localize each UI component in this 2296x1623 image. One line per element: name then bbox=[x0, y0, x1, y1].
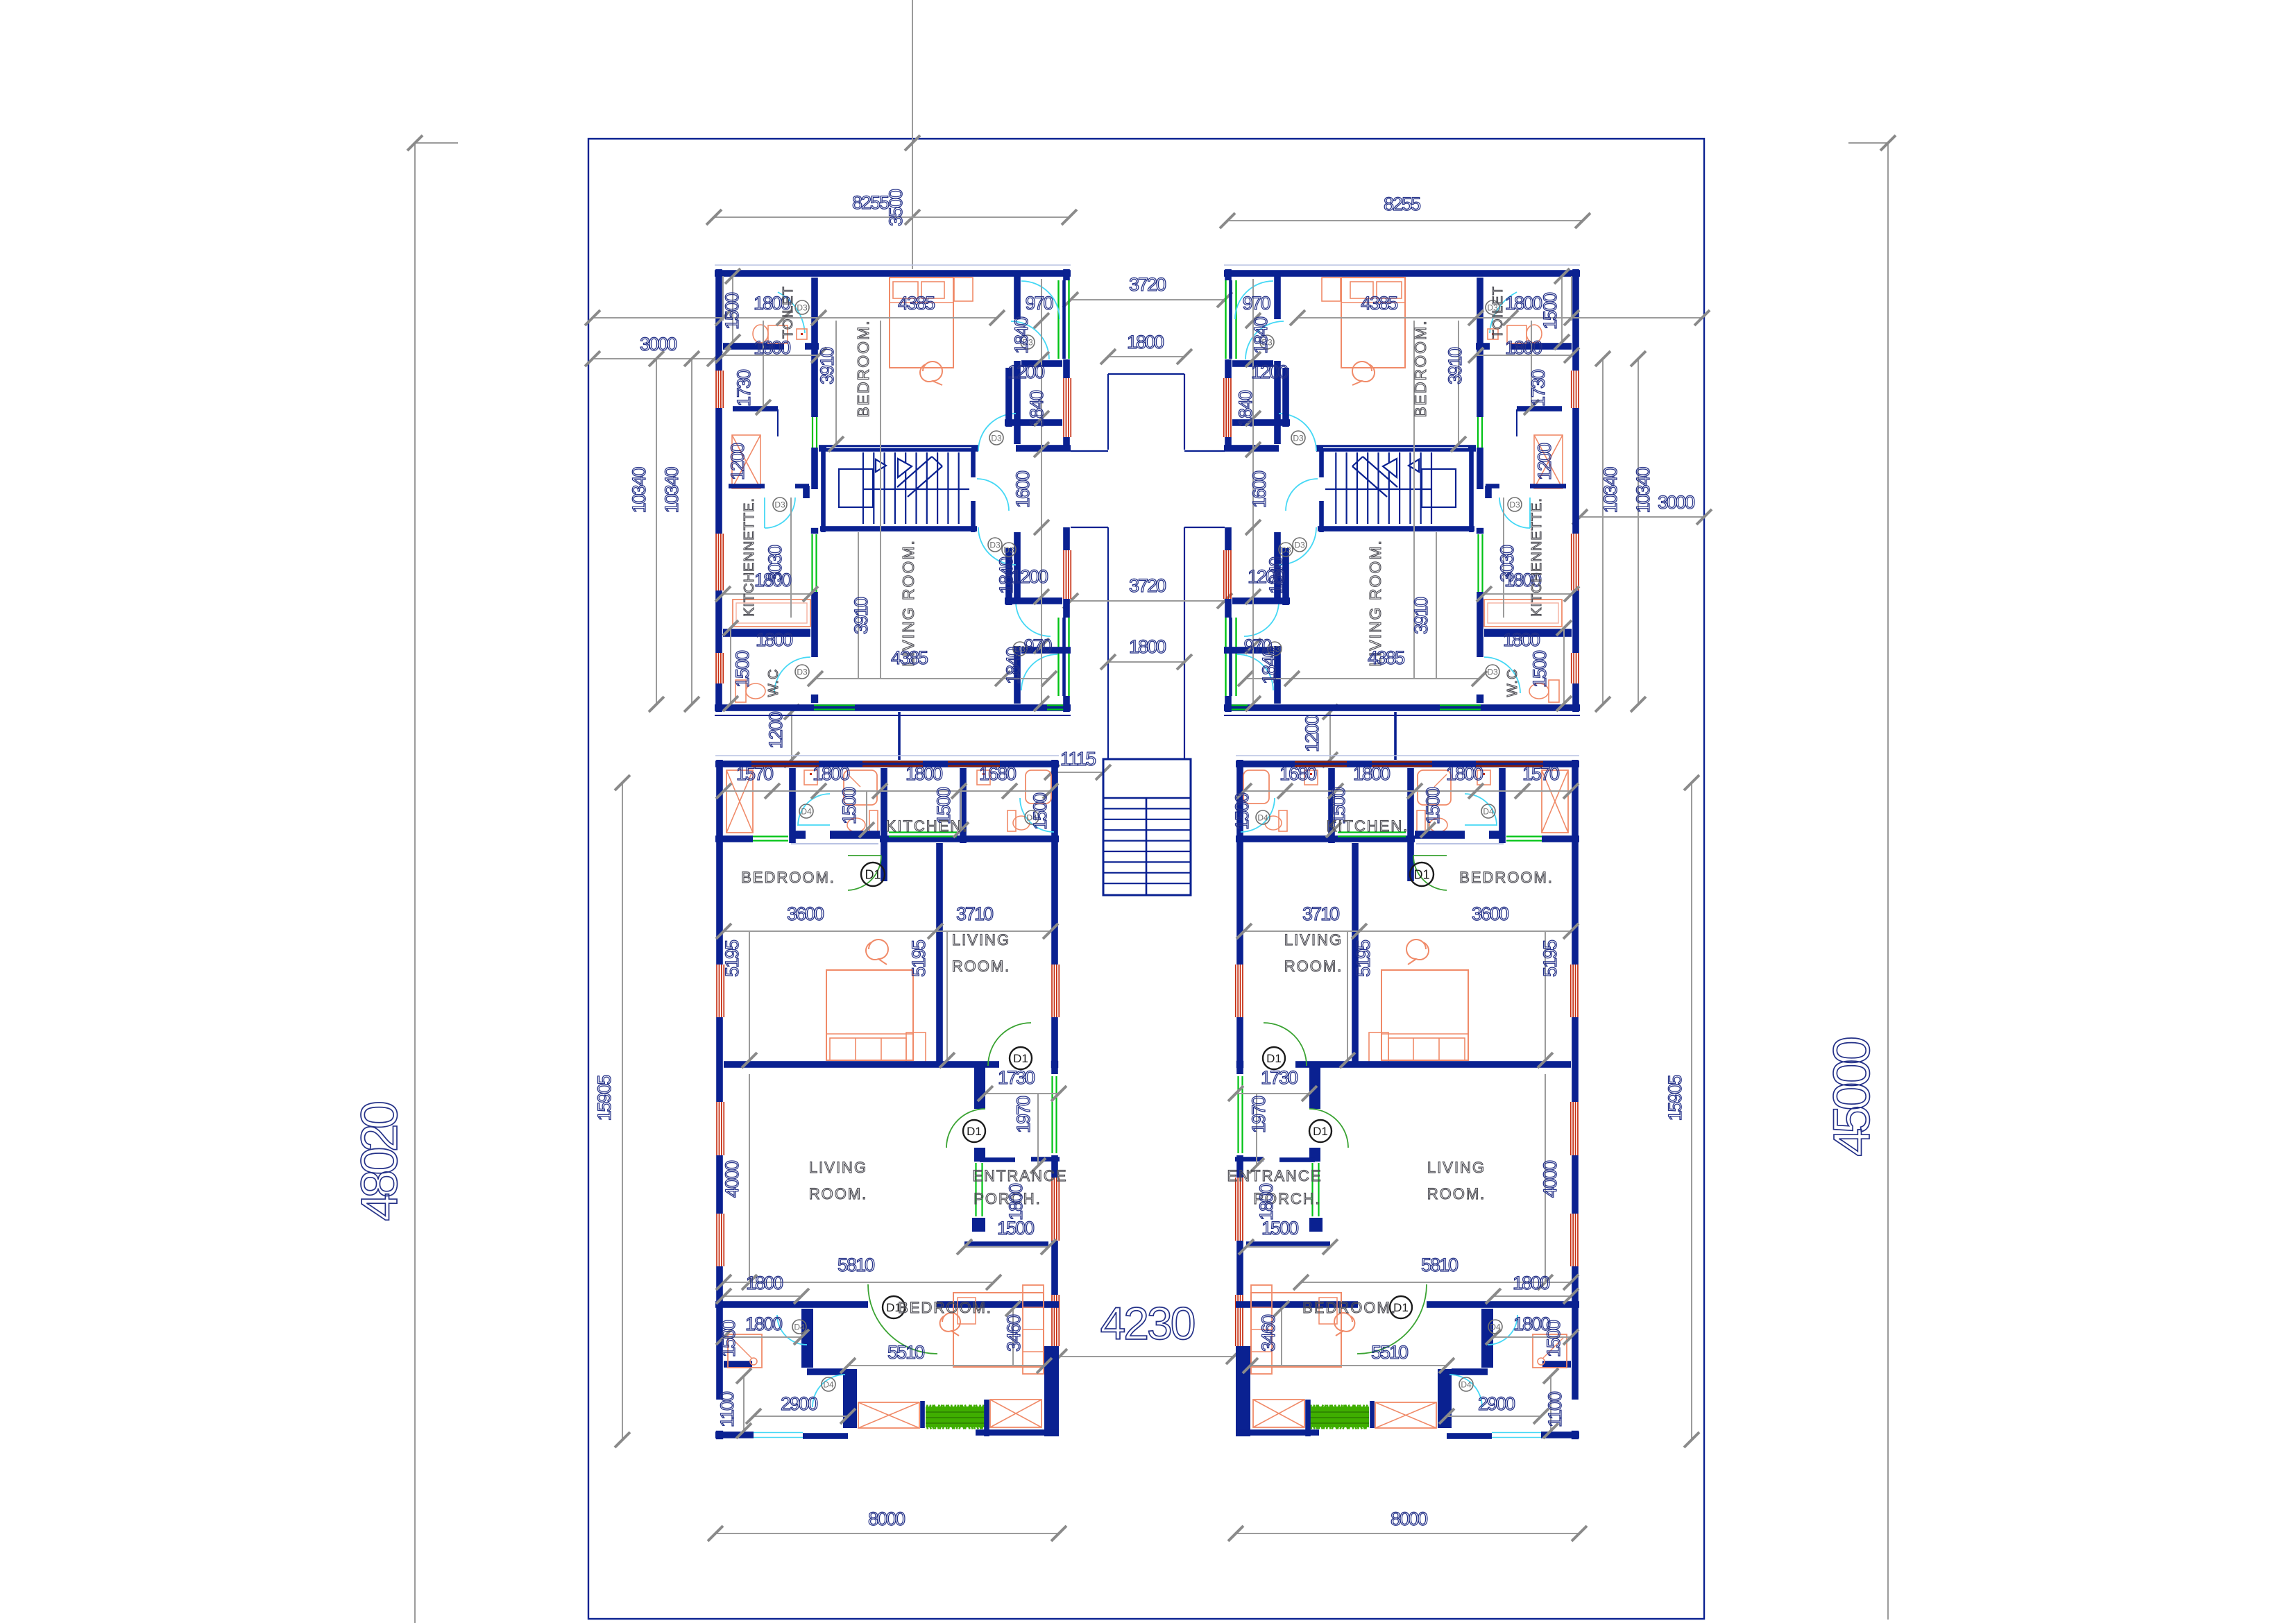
svg-text:BEDROOM.: BEDROOM. bbox=[741, 869, 835, 886]
svg-text:1600: 1600 bbox=[1249, 471, 1270, 508]
svg-text:1680: 1680 bbox=[979, 763, 1016, 784]
svg-text:TOILET: TOILET bbox=[781, 286, 796, 339]
svg-text:1200: 1200 bbox=[1251, 362, 1288, 382]
svg-text:D3: D3 bbox=[1003, 545, 1014, 554]
svg-text:3720: 3720 bbox=[1129, 575, 1166, 596]
svg-text:1500: 1500 bbox=[1261, 1218, 1298, 1239]
svg-text:1800: 1800 bbox=[1005, 1184, 1026, 1221]
svg-text:2900: 2900 bbox=[781, 1393, 817, 1414]
svg-text:LIVING: LIVING bbox=[1284, 931, 1343, 949]
svg-text:1800: 1800 bbox=[1446, 763, 1483, 784]
svg-text:BEDROOM.: BEDROOM. bbox=[1302, 1299, 1397, 1316]
svg-text:4385: 4385 bbox=[891, 647, 928, 668]
svg-text:1800: 1800 bbox=[813, 763, 849, 784]
svg-text:8255: 8255 bbox=[852, 192, 889, 213]
svg-text:1840: 1840 bbox=[1235, 391, 1256, 427]
svg-text:3600: 3600 bbox=[787, 903, 824, 924]
svg-text:KITCHENNETTE.: KITCHENNETTE. bbox=[1529, 498, 1545, 617]
svg-text:1600: 1600 bbox=[1012, 471, 1033, 508]
svg-text:D3: D3 bbox=[989, 540, 1001, 550]
svg-text:3500: 3500 bbox=[885, 189, 906, 226]
svg-text:1680: 1680 bbox=[1279, 763, 1316, 784]
svg-text:D4: D4 bbox=[1461, 1379, 1472, 1389]
svg-text:D4: D4 bbox=[1257, 813, 1268, 822]
svg-text:ENTRANCE: ENTRANCE bbox=[1227, 1167, 1322, 1184]
svg-text:2900: 2900 bbox=[1478, 1393, 1515, 1414]
svg-text:48020: 48020 bbox=[350, 1102, 408, 1221]
svg-text:ROOM.: ROOM. bbox=[1284, 958, 1343, 975]
svg-text:D1: D1 bbox=[1413, 868, 1429, 882]
svg-text:1730: 1730 bbox=[1261, 1067, 1298, 1088]
svg-text:3910: 3910 bbox=[1445, 348, 1465, 384]
svg-text:5810: 5810 bbox=[837, 1255, 874, 1275]
svg-text:1800: 1800 bbox=[1353, 763, 1390, 784]
svg-text:TOILET: TOILET bbox=[1490, 286, 1506, 339]
svg-text:1730: 1730 bbox=[998, 1067, 1035, 1088]
svg-text:1500: 1500 bbox=[722, 293, 742, 330]
svg-text:D4: D4 bbox=[823, 1379, 834, 1389]
svg-text:D1: D1 bbox=[1266, 1052, 1282, 1065]
svg-text:1800: 1800 bbox=[1513, 1273, 1549, 1293]
svg-text:D1: D1 bbox=[865, 868, 881, 882]
svg-text:1500: 1500 bbox=[1232, 793, 1252, 830]
svg-text:1800: 1800 bbox=[905, 763, 942, 784]
svg-text:1840: 1840 bbox=[1011, 317, 1032, 354]
svg-text:1730: 1730 bbox=[1528, 370, 1549, 407]
svg-text:D4: D4 bbox=[801, 806, 812, 816]
svg-text:1840: 1840 bbox=[1250, 317, 1271, 354]
svg-text:1840: 1840 bbox=[1003, 647, 1023, 684]
svg-text:5195: 5195 bbox=[722, 940, 742, 977]
svg-text:D3: D3 bbox=[774, 500, 785, 509]
svg-text:8000: 8000 bbox=[868, 1509, 905, 1529]
svg-text:1500: 1500 bbox=[732, 651, 753, 688]
svg-text:ROOM.: ROOM. bbox=[1427, 1185, 1486, 1203]
svg-text:1840: 1840 bbox=[996, 557, 1017, 594]
svg-text:BEDROOM.: BEDROOM. bbox=[898, 1299, 992, 1316]
svg-text:1800: 1800 bbox=[1127, 332, 1164, 352]
svg-text:4385: 4385 bbox=[898, 293, 935, 314]
svg-text:1970: 1970 bbox=[1248, 1096, 1269, 1133]
svg-text:1730: 1730 bbox=[733, 370, 754, 407]
svg-text:LIVING: LIVING bbox=[1427, 1159, 1486, 1176]
svg-text:5195: 5195 bbox=[1353, 940, 1374, 977]
svg-text:5810: 5810 bbox=[1421, 1255, 1458, 1275]
svg-text:5510: 5510 bbox=[1371, 1342, 1408, 1363]
svg-text:3710: 3710 bbox=[956, 903, 993, 924]
svg-text:D3: D3 bbox=[797, 303, 808, 312]
svg-text:1800: 1800 bbox=[1129, 636, 1166, 657]
svg-text:1500: 1500 bbox=[718, 1320, 739, 1357]
svg-text:1100: 1100 bbox=[1545, 1392, 1565, 1427]
svg-text:BEDROOM.: BEDROOM. bbox=[1459, 869, 1554, 886]
svg-text:4000: 4000 bbox=[722, 1161, 742, 1198]
svg-text:3600: 3600 bbox=[1472, 903, 1508, 924]
svg-text:D3: D3 bbox=[991, 433, 1002, 443]
svg-text:970: 970 bbox=[1023, 636, 1051, 656]
svg-text:ROOM.: ROOM. bbox=[952, 958, 1011, 975]
svg-text:1200: 1200 bbox=[727, 443, 748, 480]
svg-text:970: 970 bbox=[1025, 293, 1053, 314]
svg-text:3460: 3460 bbox=[1003, 1315, 1024, 1352]
svg-text:1840: 1840 bbox=[1026, 391, 1047, 427]
svg-text:D4: D4 bbox=[794, 1322, 805, 1332]
svg-text:D3: D3 bbox=[1294, 540, 1305, 550]
svg-text:LIVING: LIVING bbox=[809, 1159, 867, 1176]
svg-text:4385: 4385 bbox=[1361, 293, 1397, 314]
svg-text:1800: 1800 bbox=[746, 1273, 783, 1293]
svg-text:D1: D1 bbox=[1013, 1052, 1028, 1065]
svg-text:D1: D1 bbox=[967, 1125, 982, 1138]
svg-text:970: 970 bbox=[1242, 293, 1270, 314]
svg-text:1800: 1800 bbox=[1505, 293, 1542, 314]
svg-text:ENTRANCE: ENTRANCE bbox=[972, 1167, 1067, 1184]
svg-text:1200: 1200 bbox=[765, 712, 786, 749]
svg-text:D3: D3 bbox=[1509, 500, 1520, 509]
svg-text:1500: 1500 bbox=[1030, 793, 1051, 830]
svg-text:D3: D3 bbox=[1280, 545, 1291, 554]
svg-text:D3: D3 bbox=[1293, 433, 1304, 443]
svg-text:10340: 10340 bbox=[629, 467, 649, 513]
svg-text:D3: D3 bbox=[797, 667, 808, 677]
svg-text:4000: 4000 bbox=[1540, 1161, 1561, 1198]
svg-text:ROOM.: ROOM. bbox=[809, 1185, 868, 1203]
svg-text:D4: D4 bbox=[1490, 1322, 1501, 1332]
svg-text:4385: 4385 bbox=[1368, 647, 1404, 668]
svg-text:5510: 5510 bbox=[887, 1342, 924, 1363]
svg-text:KITCHEN.: KITCHEN. bbox=[1327, 817, 1409, 835]
svg-text:1840: 1840 bbox=[1266, 557, 1286, 594]
svg-text:3000: 3000 bbox=[640, 334, 677, 355]
svg-text:970: 970 bbox=[1243, 636, 1271, 656]
svg-text:3910: 3910 bbox=[817, 348, 837, 384]
svg-text:1800: 1800 bbox=[1505, 337, 1542, 358]
svg-text:5195: 5195 bbox=[908, 940, 929, 977]
svg-text:W.C: W.C bbox=[766, 669, 781, 697]
svg-text:LIVING: LIVING bbox=[952, 931, 1010, 949]
svg-text:1500: 1500 bbox=[997, 1218, 1034, 1239]
svg-text:W.C: W.C bbox=[1505, 669, 1520, 697]
svg-text:10340: 10340 bbox=[1600, 467, 1621, 513]
svg-text:1800: 1800 bbox=[1503, 629, 1540, 650]
svg-text:3720: 3720 bbox=[1129, 274, 1166, 295]
svg-text:KITCHENNETTE.: KITCHENNETTE. bbox=[742, 498, 757, 617]
svg-text:3000: 3000 bbox=[1658, 492, 1694, 513]
svg-text:1200: 1200 bbox=[1534, 443, 1555, 480]
svg-text:BEDROOM.: BEDROOM. bbox=[854, 319, 872, 417]
svg-text:1115: 1115 bbox=[1060, 748, 1096, 770]
svg-text:15905: 15905 bbox=[594, 1075, 615, 1121]
svg-text:1500: 1500 bbox=[1540, 293, 1561, 330]
svg-text:3910: 3910 bbox=[1411, 597, 1431, 634]
svg-text:D1: D1 bbox=[1313, 1125, 1328, 1138]
svg-text:10340: 10340 bbox=[661, 467, 682, 513]
svg-text:3710: 3710 bbox=[1302, 903, 1339, 924]
svg-text:4230: 4230 bbox=[1100, 1298, 1195, 1349]
svg-text:8255: 8255 bbox=[1384, 194, 1420, 214]
svg-text:1800: 1800 bbox=[754, 337, 790, 358]
svg-text:1970: 1970 bbox=[1013, 1096, 1034, 1133]
svg-text:1200: 1200 bbox=[1302, 715, 1323, 752]
svg-text:1570: 1570 bbox=[1522, 763, 1559, 784]
svg-text:3460: 3460 bbox=[1258, 1315, 1279, 1352]
svg-text:1100: 1100 bbox=[717, 1392, 738, 1427]
svg-text:D3: D3 bbox=[1487, 667, 1498, 677]
svg-text:BEDROOM.: BEDROOM. bbox=[1411, 319, 1429, 417]
svg-text:1800: 1800 bbox=[1256, 1184, 1277, 1221]
svg-text:1800: 1800 bbox=[745, 1314, 782, 1334]
svg-text:1570: 1570 bbox=[736, 763, 773, 784]
svg-text:1800: 1800 bbox=[1513, 1314, 1550, 1334]
svg-text:3030: 3030 bbox=[765, 545, 785, 582]
svg-text:3030: 3030 bbox=[1497, 545, 1517, 582]
svg-text:D4: D4 bbox=[1483, 806, 1494, 816]
svg-text:1500: 1500 bbox=[1422, 788, 1443, 824]
svg-text:5195: 5195 bbox=[1540, 940, 1561, 977]
svg-text:1800: 1800 bbox=[756, 629, 792, 650]
svg-text:15905: 15905 bbox=[1665, 1075, 1685, 1121]
svg-text:KITCHEN.: KITCHEN. bbox=[886, 817, 969, 835]
svg-text:1200: 1200 bbox=[1007, 362, 1044, 382]
svg-text:1500: 1500 bbox=[1529, 651, 1550, 688]
svg-text:45000: 45000 bbox=[1823, 1037, 1880, 1157]
svg-text:3910: 3910 bbox=[851, 597, 871, 634]
svg-text:1500: 1500 bbox=[839, 788, 860, 824]
svg-text:10340: 10340 bbox=[1633, 467, 1653, 513]
svg-text:8000: 8000 bbox=[1391, 1509, 1427, 1529]
